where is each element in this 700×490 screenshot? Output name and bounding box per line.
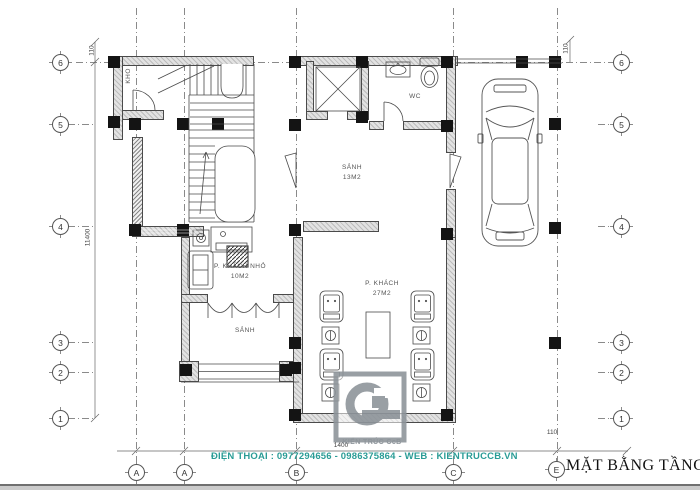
grid-stub-row-3-right [598,342,614,343]
side-table [322,327,339,344]
column-marker [108,116,120,128]
armchair [320,349,343,380]
column-marker [289,56,301,68]
column-marker [441,409,453,421]
column-marker [180,364,192,376]
axis-row-3-left: 3 [52,334,69,351]
wall-segment [293,237,303,423]
wall-segment [293,413,456,423]
grid-stub-row-5-left [68,124,96,125]
side-table [413,327,430,344]
axis-row-6-left: 6 [52,54,69,71]
door-hall-west [285,153,296,188]
wall-segment [446,56,456,153]
staircase-top [158,64,254,222]
column-marker [129,118,141,130]
axis-row-2-left: 2 [52,364,69,381]
axis-row-5-right: 5 [613,116,630,133]
room-name: P. KHÁCH NHỎ [208,262,272,272]
coffee-table [366,312,390,358]
wc-wall [369,121,384,130]
wall-segment [181,294,208,303]
axis-col-b: B [288,464,305,481]
dim-top-left: 110 [89,41,96,61]
dim-left-total: 11400 [85,218,92,258]
axis-col-c: C [445,464,462,481]
wall-segment [446,237,456,423]
grid-stub-row-2-left [68,372,96,373]
room-area: 10M2 [208,272,272,282]
axis-row-2-right: 2 [613,364,630,381]
column-marker [549,222,561,234]
axis-row-1-right: 1 [613,410,630,427]
column-marker [289,337,301,349]
wall-segment [132,226,204,237]
axis-row-4-right: 4 [613,218,630,235]
column-marker [129,224,141,236]
column-marker [289,362,301,374]
column-marker [516,56,528,68]
axis-row-5-left: 5 [52,116,69,133]
door-hall-east [450,154,461,188]
dim-top-right: 110 [563,39,570,59]
column-marker [177,224,189,236]
counter-sink [211,227,252,252]
room-label-kho: KHO [124,61,134,91]
drawing-title: MẶT BẰNG TẦNG 1 [566,457,700,475]
column-marker [549,118,561,130]
room-label-wc: WC [404,92,426,102]
grid-stub-row-4-left [68,226,96,227]
room-label-sanh-front: SẢNH [222,326,268,336]
grid-stub-row-3-left [68,342,96,343]
wall-segment [303,221,379,232]
arch-openings [208,303,279,318]
axis-row-3-right: 3 [613,334,630,351]
wall-textured-strip [132,137,143,231]
column-marker [289,224,301,236]
axis-col-a1: A [128,464,145,481]
elevator-wall [306,111,328,120]
wall-segment [294,56,458,66]
side-table [322,384,339,401]
column-marker [549,337,561,349]
side-table [413,384,430,401]
wc-door [384,102,403,121]
staircase-mid [189,130,255,222]
grid-stub-row-1-right [598,418,614,419]
grid-stub-row-1-left [68,418,96,419]
armchair [411,349,434,380]
room-label-khach-nho: P. KHÁCH NHỎ 10M2 [208,262,272,282]
floor-plan-canvas: 6 5 4 3 2 1 6 5 4 3 2 1 A A B C E KHO WC… [0,0,700,490]
axis-row-1-left: 1 [52,410,69,427]
column-marker [441,228,453,240]
axis-title-marker: E [548,461,565,478]
wall-segment [113,56,254,66]
company-logo [336,374,404,440]
column-marker [177,118,189,130]
column-marker [289,409,301,421]
room-label-khach: P. KHÁCH 27M2 [353,279,411,299]
room-label-sanh-main: SẢNH 13M2 [330,163,374,183]
column-marker [549,56,561,68]
column-marker [108,56,120,68]
column-marker [441,56,453,68]
grid-stub-row-4-right [598,226,614,227]
room-area: 13M2 [330,173,374,183]
contact-info: ĐIỆN THOẠI : 0977294656 - 0986375864 - W… [211,451,518,462]
grid-stub-row-2-right [598,372,614,373]
room-name: SẢNH [330,163,374,173]
axis-row-6-right: 6 [613,54,630,71]
logo-text: KIẾN TRÚC CcB [336,439,408,446]
grid-stub-row-5-right [598,124,614,125]
elevator-shaft [316,67,360,111]
armchair [320,291,343,322]
column-marker [356,111,368,123]
column-marker [356,56,368,68]
column-marker [289,119,301,131]
axis-col-a2: A [176,464,193,481]
bottom-divider [0,484,700,490]
grid-line-vertical-e [557,8,558,463]
room-name: P. KHÁCH [353,279,411,289]
dim-bottom-right: 110 [541,429,563,436]
armchair [411,291,434,322]
room-area: 27M2 [353,289,411,299]
axis-row-4-left: 4 [52,218,69,235]
column-marker [212,118,224,130]
car-icon [478,79,542,246]
column-marker [441,120,453,132]
